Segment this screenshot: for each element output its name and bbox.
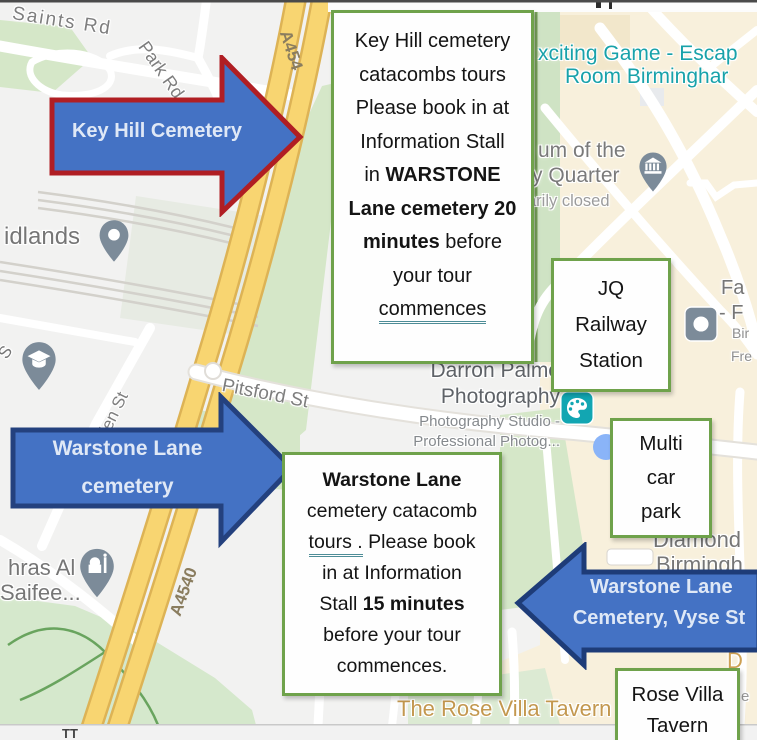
train-station-icon — [684, 306, 718, 342]
warstone-arrow-label-line1: Warstone Lane — [30, 437, 225, 461]
note-line: commences — [334, 293, 531, 327]
note-line: Lane cemetery 20 — [334, 193, 531, 227]
poi-label-escape-room-line2: Room Birminghar — [565, 66, 728, 88]
poi-label-midlands: idlands — [4, 224, 80, 249]
poi-label-museum-status: arily closed — [527, 193, 610, 210]
poi-label-fa: Fa — [721, 278, 744, 299]
box-line: Station — [554, 343, 668, 379]
poi-label-f: - F — [719, 303, 743, 324]
note-line: tours . Please book — [285, 527, 499, 558]
annotated-map: Saints Rd Park Rd S A454 A4540 Ellen St … — [0, 0, 757, 740]
vyse-arrow — [514, 542, 757, 670]
poi-label-escape-room-line1: xciting Game - Escap — [538, 43, 738, 65]
note-line: in at Information — [285, 558, 499, 589]
poi-label-photography-line2: Photography — [413, 386, 560, 408]
note-line: Warstone Lane — [285, 465, 499, 496]
note-line: Information Stall — [334, 126, 531, 160]
note-line: Stall 15 minutes — [285, 589, 499, 620]
poi-label-photography-sub1: Photography Studio - — [386, 414, 560, 430]
location-pin-icon — [96, 218, 132, 264]
poi-label-museum-line2: y Quarter — [532, 165, 620, 187]
note-line: in WARSTONE — [334, 159, 531, 193]
note-line: cemetery catacomb — [285, 496, 499, 527]
note-line: catacombs tours — [334, 59, 531, 93]
note-line: before your tour — [285, 620, 499, 651]
museum-pin-icon — [636, 146, 670, 198]
poi-label-e-fragment: e — [741, 689, 749, 705]
poi-label-mosque-line2: Saifee... — [0, 581, 81, 604]
key-hill-arrow-label: Key Hill Cemetery — [68, 120, 246, 143]
warstone-note: Warstone Lane cemetery catacomb tours . … — [282, 452, 502, 696]
box-line: park — [613, 495, 709, 529]
school-pin-icon — [18, 340, 60, 392]
poi-label-tavern: The Rose Villa Tavern — [397, 697, 611, 720]
warstone-arrow-label-line2: cemetery — [30, 475, 225, 499]
box-line: Multi — [613, 427, 709, 461]
poi-label-photography-sub2: Professional Photog... — [386, 434, 560, 450]
poi-label-museum-line1: um of the — [538, 140, 626, 162]
jq-station-box: JQ Railway Station — [551, 258, 671, 392]
note-line: minutes before — [334, 226, 531, 260]
poi-label-bir: Bir — [732, 326, 749, 341]
box-line: Rose Villa — [618, 679, 737, 710]
bottom-strip-fragment: TT — [62, 726, 78, 740]
box-line: car — [613, 461, 709, 495]
car-park-box: Multi car park — [610, 418, 712, 538]
box-line: Tavern — [618, 710, 737, 740]
mosque-pin-icon — [76, 546, 118, 600]
note-line: Key Hill cemetery — [334, 25, 531, 59]
rose-villa-box: Rose Villa Tavern — [615, 668, 740, 740]
poi-label-fre: Fre — [731, 349, 752, 364]
poi-label-mosque-line1: hras Al — [8, 556, 75, 579]
note-line: commences. — [285, 651, 499, 682]
palette-icon — [560, 391, 594, 425]
warstone-arrow — [8, 392, 298, 550]
note-line: Please book in at — [334, 92, 531, 126]
vyse-arrow-label-line2: Cemetery, Vyse St — [566, 607, 752, 630]
note-line: your tour — [334, 260, 531, 294]
vyse-arrow-label-line1: Warstone Lane — [590, 576, 732, 599]
key-hill-note: Key Hill cemetery catacombs tours Please… — [331, 10, 534, 364]
box-line: Railway — [554, 307, 668, 343]
box-line: JQ — [554, 271, 668, 307]
